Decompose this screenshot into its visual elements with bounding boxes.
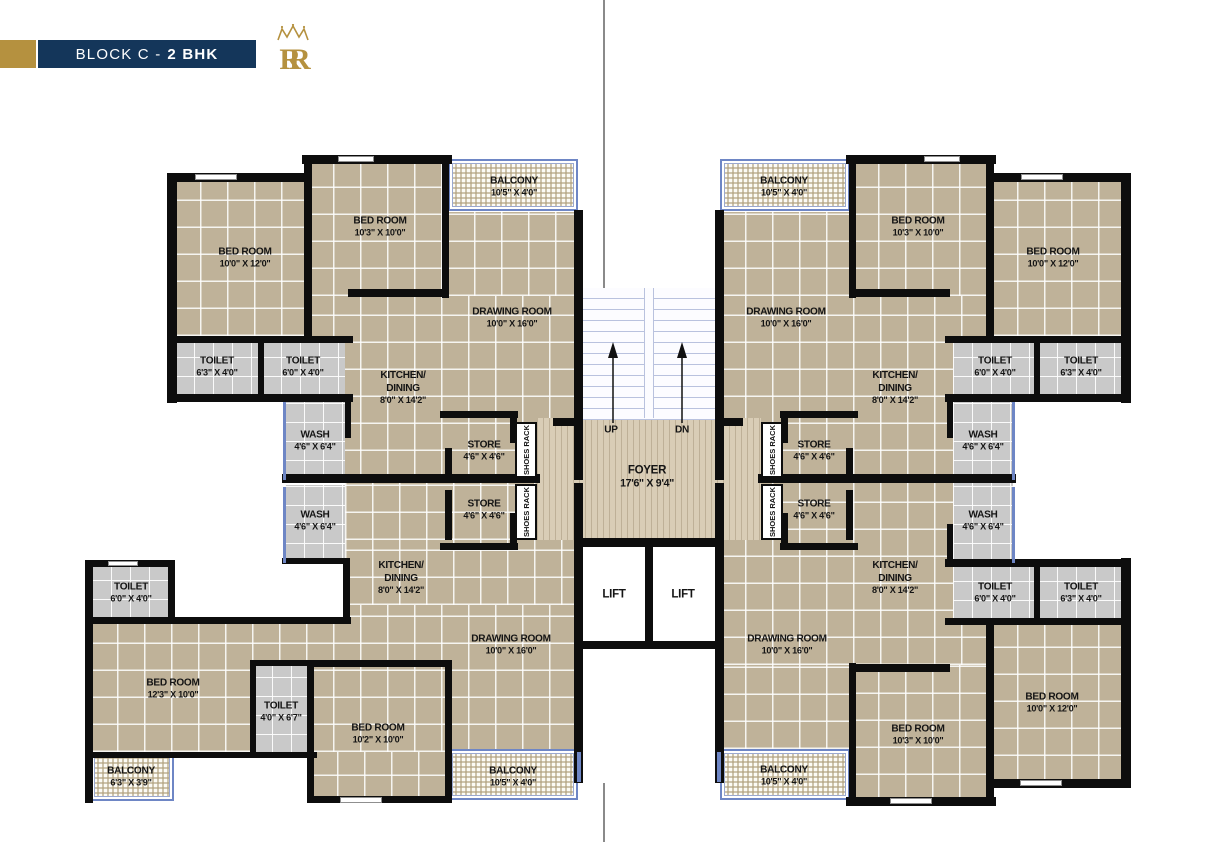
wall bbox=[849, 289, 950, 297]
stair-up-label: UP bbox=[604, 423, 617, 436]
wall bbox=[440, 411, 518, 418]
block-title-prefix: BLOCK C - bbox=[76, 46, 162, 63]
wall bbox=[715, 483, 724, 783]
wall bbox=[849, 663, 856, 802]
block-title-banner: BLOCK C - 2 BHK bbox=[38, 40, 256, 68]
wall bbox=[1034, 564, 1040, 624]
floor-drawing-tr bbox=[718, 212, 851, 296]
shoes-rack: SHOES RACK bbox=[761, 422, 783, 478]
wall bbox=[168, 560, 175, 624]
room-label-wash-tl: WASH 4'6" X 6'4" bbox=[294, 429, 335, 454]
shoes-rack-label: SHOES RACK bbox=[522, 425, 531, 475]
wall bbox=[719, 418, 743, 426]
block-title-bold: 2 BHK bbox=[167, 46, 218, 63]
window-blue bbox=[717, 752, 721, 782]
wall bbox=[445, 660, 452, 803]
section-line bbox=[603, 783, 605, 842]
wall bbox=[986, 159, 994, 337]
room-label-store-bl: STORE 4'6" X 4'6" bbox=[463, 498, 504, 523]
window-blue bbox=[283, 402, 286, 480]
wall bbox=[947, 524, 953, 562]
window-blue bbox=[577, 752, 581, 782]
logo-monogram: RR bbox=[258, 47, 320, 73]
wall bbox=[445, 490, 452, 540]
room-label-drawing-tr: DRAWING ROOM 10'0" X 16'0" bbox=[746, 306, 825, 331]
room-label-toilet-a-tl: TOILET 6'3" X 4'0" bbox=[196, 355, 237, 380]
window-blue bbox=[1012, 402, 1015, 480]
room-label-kitchen-br: KITCHEN/ DINING 8'0" X 14'2" bbox=[872, 559, 918, 597]
builder-logo: RR bbox=[268, 24, 320, 76]
room-label-drawing-tl: DRAWING ROOM 10'0" X 16'0" bbox=[472, 306, 551, 331]
wall bbox=[282, 558, 348, 564]
room-label-store-br: STORE 4'6" X 4'6" bbox=[793, 498, 834, 523]
room-label-toilet-b-br: TOILET 6'3" X 4'0" bbox=[1060, 581, 1101, 606]
window bbox=[890, 798, 932, 804]
room-label-wash-bl: WASH 4'6" X 6'4" bbox=[294, 509, 335, 534]
wall bbox=[85, 560, 93, 803]
room-label-toilet-b-tl: TOILET 6'0" X 4'0" bbox=[282, 355, 323, 380]
lift-right-label: LIFT bbox=[671, 587, 694, 602]
window bbox=[924, 156, 960, 162]
window bbox=[1021, 174, 1063, 180]
wall bbox=[167, 173, 312, 182]
floor-drawing-tl bbox=[447, 212, 580, 296]
window bbox=[340, 797, 382, 803]
room-label-bedroom-main-bl: BED ROOM 12'3" X 10'0" bbox=[146, 677, 199, 702]
window bbox=[338, 156, 374, 162]
wall bbox=[849, 664, 950, 672]
room-label-balcony-br: BALCONY 10'5" X 4'0" bbox=[760, 764, 808, 789]
room-label-kitchen-tr: KITCHEN/ DINING 8'0" X 14'2" bbox=[872, 369, 918, 407]
room-label-bedroom-main-tl: BED ROOM 10'0" X 12'0" bbox=[218, 246, 271, 271]
room-label-balcony-bl: BALCONY 10'5" X 4'0" bbox=[489, 765, 537, 790]
room-label-drawing-br: DRAWING ROOM 10'0" X 16'0" bbox=[747, 633, 826, 658]
shoes-rack-label: SHOES RACK bbox=[768, 425, 777, 475]
wall bbox=[574, 483, 583, 783]
wall bbox=[947, 400, 953, 438]
window bbox=[1020, 780, 1062, 786]
room-label-toilet-a-br: TOILET 6'0" X 4'0" bbox=[974, 581, 1015, 606]
room-label-store-tr: STORE 4'6" X 4'6" bbox=[793, 439, 834, 464]
wall bbox=[715, 288, 724, 425]
shoes-rack: SHOES RACK bbox=[761, 484, 783, 540]
wall bbox=[986, 625, 994, 803]
shoes-rack-label: SHOES RACK bbox=[522, 487, 531, 537]
wall bbox=[846, 448, 853, 476]
window-blue bbox=[283, 487, 286, 563]
wall bbox=[348, 289, 449, 297]
room-label-bedroom-main-br: BED ROOM 10'0" X 12'0" bbox=[1025, 691, 1078, 716]
wall bbox=[440, 543, 518, 550]
room-label-toilet-b-tr: TOILET 6'3" X 4'0" bbox=[1060, 355, 1101, 380]
wall bbox=[345, 400, 351, 438]
wall bbox=[575, 641, 723, 649]
room-label-bedroom-main-tr: BED ROOM 10'0" X 12'0" bbox=[1026, 246, 1079, 271]
room-label-bedroom-second-tl: BED ROOM 10'3" X 10'0" bbox=[353, 215, 406, 240]
room-label-kitchen-tl: KITCHEN/ DINING 8'0" X 14'2" bbox=[380, 369, 426, 407]
room-label-balcony-tl: BALCONY 10'5" X 4'0" bbox=[490, 175, 538, 200]
room-label-bedroom-second-bl: BED ROOM 10'2" X 10'0" bbox=[351, 722, 404, 747]
room-label-wash-tr: WASH 4'6" X 6'4" bbox=[962, 429, 1003, 454]
wall bbox=[343, 558, 350, 620]
shoes-rack: SHOES RACK bbox=[515, 422, 537, 478]
room-label-toilet-a-tr: TOILET 6'0" X 4'0" bbox=[974, 355, 1015, 380]
room-label-drawing-bl: DRAWING ROOM 10'0" X 16'0" bbox=[471, 633, 550, 658]
wall bbox=[645, 538, 653, 649]
room-label-toilet-a-bl: TOILET 6'0" X 4'0" bbox=[110, 581, 151, 606]
wall bbox=[1121, 173, 1131, 403]
window-blue bbox=[1012, 487, 1015, 563]
wall bbox=[442, 159, 449, 298]
room-label-bedroom-second-tr: BED ROOM 10'3" X 10'0" bbox=[891, 215, 944, 240]
stair-direction-arrows bbox=[583, 340, 715, 425]
foyer-label: FOYER 17'6" X 9'4" bbox=[620, 463, 674, 492]
wall bbox=[846, 490, 853, 540]
wall bbox=[258, 338, 264, 398]
room-label-wash-br: WASH 4'6" X 6'4" bbox=[962, 509, 1003, 534]
wall bbox=[250, 660, 314, 666]
wall bbox=[553, 418, 579, 426]
window bbox=[108, 561, 138, 566]
room-label-balcony-small-bl: BALCONY 6'3" X 3'9" bbox=[107, 765, 155, 790]
room-label-kitchen-bl: KITCHEN/ DINING 8'0" X 14'2" bbox=[378, 559, 424, 597]
wall bbox=[574, 288, 583, 425]
wall bbox=[1034, 338, 1040, 398]
room-label-toilet-b-bl: TOILET 4'0" X 6'7" bbox=[260, 700, 301, 725]
wall bbox=[849, 159, 856, 298]
wall bbox=[282, 474, 540, 483]
wall bbox=[307, 660, 314, 803]
wall bbox=[445, 448, 452, 476]
wall bbox=[780, 543, 858, 550]
floor-drawing-br bbox=[718, 665, 851, 749]
shoes-rack-label: SHOES RACK bbox=[768, 487, 777, 537]
wall bbox=[85, 617, 351, 624]
wall bbox=[85, 752, 317, 758]
wall bbox=[250, 660, 256, 758]
notch-open-area bbox=[172, 558, 343, 620]
duct-below-lift bbox=[583, 649, 715, 783]
room-label-bedroom-second-br: BED ROOM 10'3" X 10'0" bbox=[891, 723, 944, 748]
wall bbox=[780, 411, 858, 418]
crown-icon bbox=[272, 24, 316, 42]
shoes-rack: SHOES RACK bbox=[515, 484, 537, 540]
room-label-balcony-tr: BALCONY 10'5" X 4'0" bbox=[760, 175, 808, 200]
room-label-store-tl: STORE 4'6" X 4'6" bbox=[463, 439, 504, 464]
stair-dn-label: DN bbox=[675, 423, 689, 436]
wall bbox=[167, 173, 177, 403]
wall bbox=[304, 159, 312, 337]
wall bbox=[846, 155, 996, 164]
wall bbox=[758, 474, 1016, 483]
wall bbox=[302, 155, 452, 164]
header-gold-accent bbox=[0, 40, 36, 68]
section-line bbox=[603, 0, 605, 290]
wall bbox=[1121, 558, 1131, 788]
window bbox=[195, 174, 237, 180]
wall bbox=[307, 660, 452, 667]
lift-left-label: LIFT bbox=[602, 587, 625, 602]
